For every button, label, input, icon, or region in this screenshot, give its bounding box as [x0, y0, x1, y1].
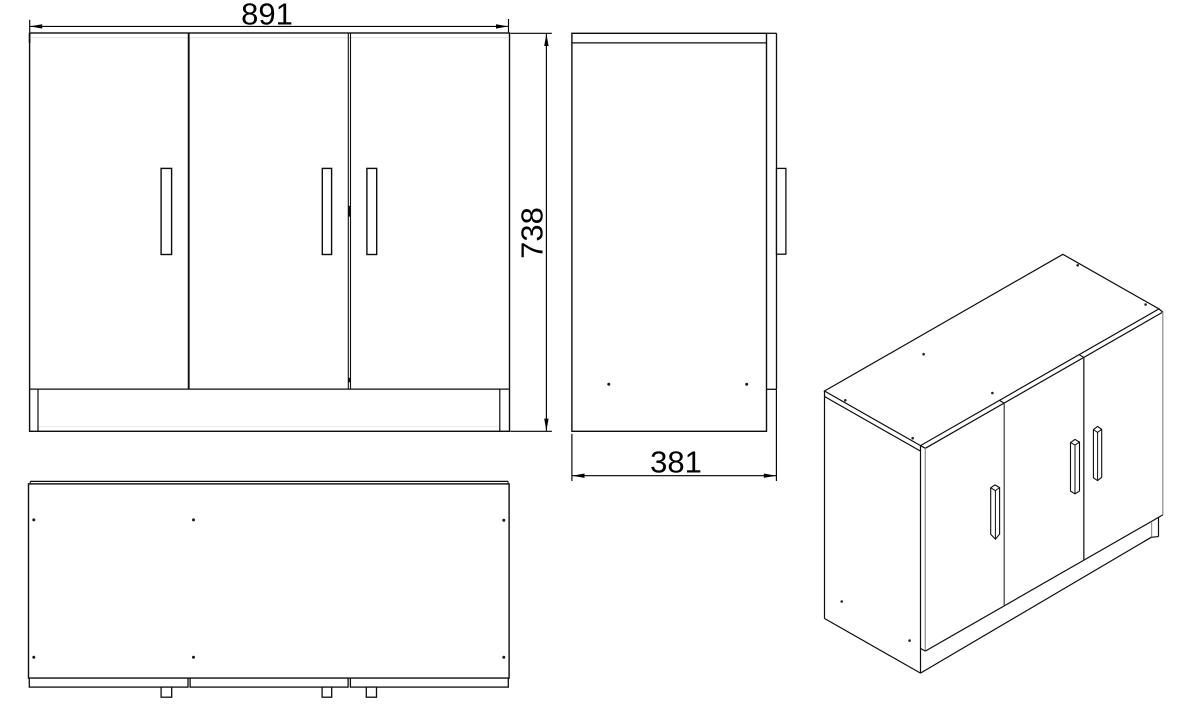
svg-text:891: 891 — [241, 0, 293, 32]
svg-text:738: 738 — [515, 207, 550, 259]
svg-text:381: 381 — [650, 445, 702, 480]
